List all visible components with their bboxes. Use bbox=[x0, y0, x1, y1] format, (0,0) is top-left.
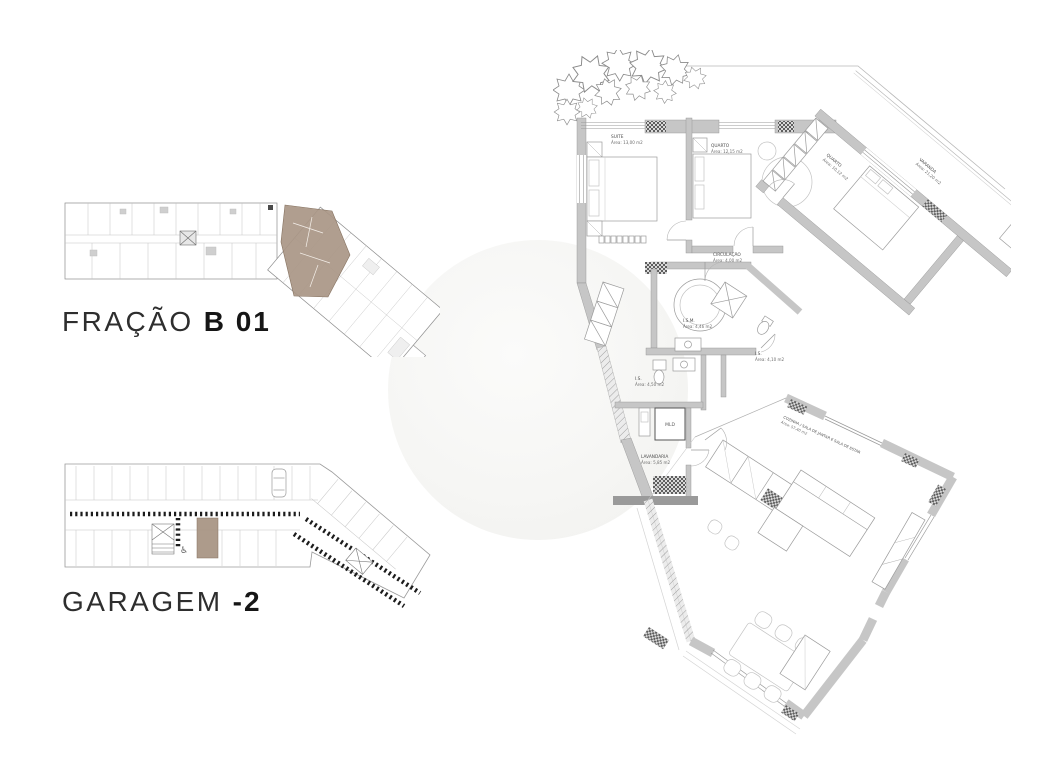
trees-foliage bbox=[553, 50, 710, 125]
garage-highlighted-parking-space bbox=[197, 518, 218, 558]
ac-unit: A/C bbox=[999, 212, 1011, 257]
room-label-circulacao: CIRCULAÇÃO bbox=[713, 251, 741, 258]
room-area-quarto2: Área: 12,15 m2 bbox=[711, 149, 743, 154]
fracao-title-bold: B 01 bbox=[204, 306, 271, 337]
fracao-title-light: FRAÇÃO bbox=[62, 306, 194, 337]
living-room-label: COZINHA / SALA DE JANTAR E SALA DE ESTAR… bbox=[780, 415, 861, 460]
room-area-is2: Área: 4,10 m2 bbox=[755, 357, 785, 362]
room-label-sala: COZINHA / SALA DE JANTAR E SALA DE ESTAR bbox=[783, 415, 862, 455]
room-area-suite: Área: 13,00 m2 bbox=[611, 140, 643, 145]
ism-bathroom bbox=[674, 279, 726, 351]
garagem-title: GARAGEM-2 bbox=[62, 586, 262, 618]
suite-furniture bbox=[584, 142, 657, 346]
room-area-circulacao: Área: 4,00 m2 bbox=[713, 258, 743, 263]
garage-outline bbox=[65, 464, 430, 598]
overview-building-block bbox=[65, 203, 277, 279]
accessible-parking-icon: ♿ bbox=[180, 546, 188, 556]
room-area-lavandaria: Área: 5,85 m2 bbox=[641, 460, 671, 465]
washing-machine-label: MLD bbox=[665, 422, 675, 428]
room-area-is-suite: Área: 4,50 m2 bbox=[635, 382, 665, 387]
garage-car-icon bbox=[272, 469, 286, 497]
fracao-title: FRAÇÃOB 01 bbox=[62, 306, 271, 338]
floorplan-sheet: FRAÇÃOB 01 bbox=[0, 0, 1042, 765]
laundry bbox=[639, 408, 685, 440]
room-area-ism: Área: 4,46 m2 bbox=[683, 324, 713, 329]
is2-bathroom bbox=[711, 282, 774, 336]
garagem-title-light: GARAGEM bbox=[62, 586, 223, 617]
garagem-title-bold: -2 bbox=[233, 586, 262, 617]
garage-elevator-stair-core bbox=[152, 524, 174, 554]
is-suite-bathroom bbox=[653, 358, 695, 384]
bar-stools bbox=[706, 518, 741, 552]
main-floor-plan: SUITE Área: 13,00 m2 QUARTO Área: 12,15 … bbox=[553, 50, 1011, 755]
